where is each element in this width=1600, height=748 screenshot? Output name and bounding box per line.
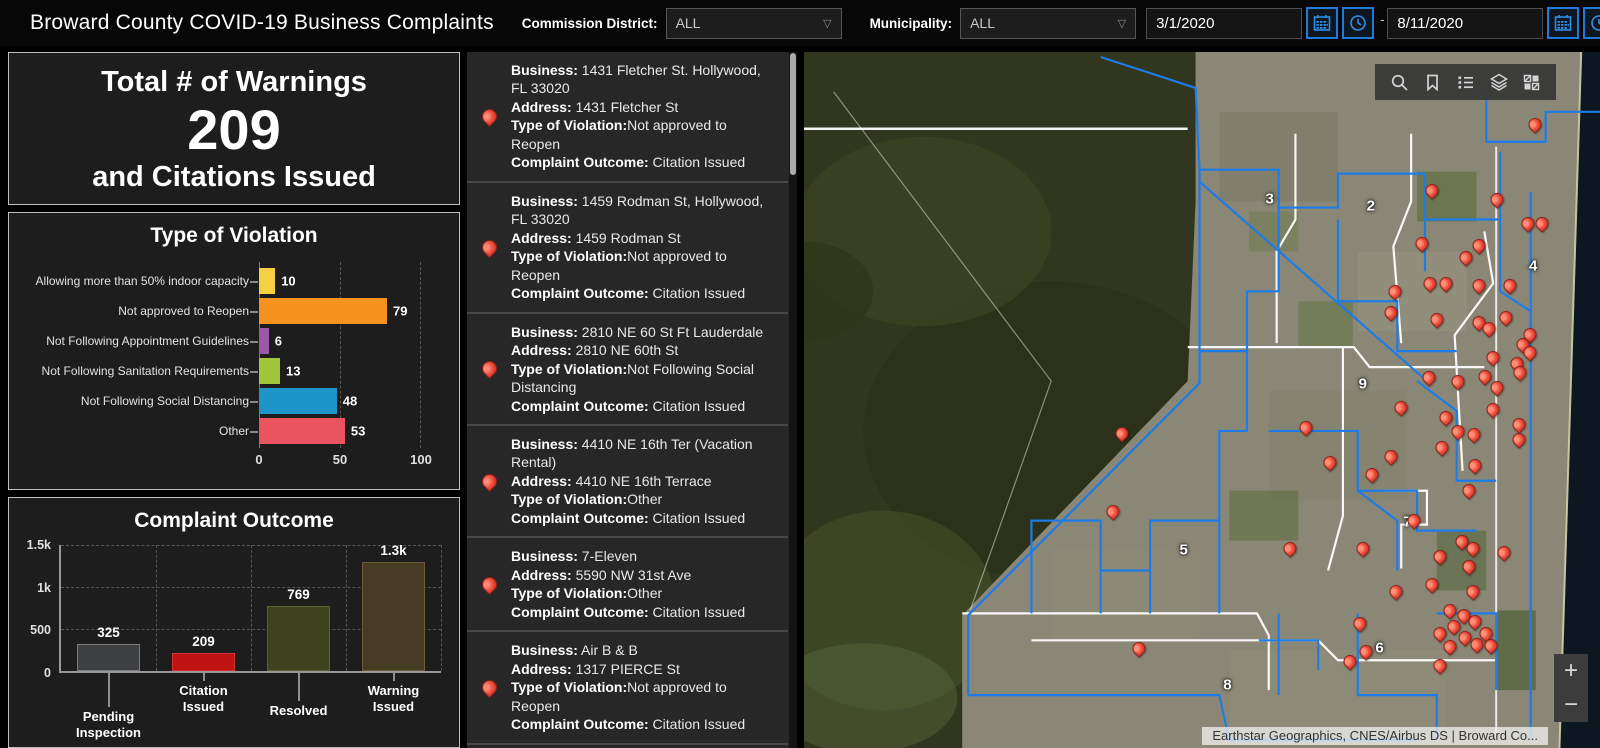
complaint-details: Business: 1431 Fletcher St. Hollywood, F… (511, 61, 767, 172)
violation-chart-title: Type of Violation (9, 224, 459, 248)
outcome-category-label: CitationIssued (156, 683, 251, 716)
violation-bar[interactable] (259, 268, 275, 294)
map-zoom-controls: + − (1554, 654, 1588, 722)
outcome-chart-panel: Complaint Outcome 1.5k1k5000 3252097691.… (8, 497, 460, 748)
list-scrollbar[interactable] (789, 52, 797, 748)
complaint-list-item[interactable]: Business: 4410 NE 16th Ter (Vacation Ren… (467, 424, 788, 536)
map-toolbar (1375, 64, 1556, 100)
field-label: Address: (511, 567, 572, 583)
violation-bar-row: Not Following Sanitation Requirements13 (19, 356, 445, 386)
chevron-down-icon: ▽ (1118, 17, 1126, 30)
pin-column (467, 361, 511, 376)
outcome-bar[interactable] (362, 562, 425, 671)
complaint-map-pin[interactable] (1448, 422, 1466, 440)
outcome-y-tick: 1k (37, 581, 51, 595)
outcome-tick-line (108, 673, 110, 707)
complaint-map-pin[interactable] (1440, 601, 1458, 619)
field-label: Business: (511, 324, 578, 340)
outcome-bar-cell: 1.3k (346, 545, 441, 671)
violation-category-label: Not Following Sanitation Requirements (19, 364, 259, 378)
outcome-bar-cell: 209 (156, 545, 251, 671)
app-title: Broward County COVID-19 Business Complai… (30, 11, 494, 35)
date-range-separator: - (1380, 12, 1384, 27)
map-attribution: Earthstar Geographics, CNES/Airbus DS | … (1202, 727, 1548, 745)
outcome-category: WarningIssued (346, 673, 441, 742)
header-bar: Broward County COVID-19 Business Complai… (0, 0, 1600, 46)
municipality-select[interactable]: ALL ▽ (960, 8, 1136, 39)
complaint-map-pin[interactable] (1488, 190, 1506, 208)
field-label: Type of Violation: (511, 361, 627, 377)
clock-icon (1590, 14, 1600, 32)
complaint-map-pin[interactable] (1297, 418, 1315, 436)
complaint-map-pin[interactable] (1381, 447, 1399, 465)
complaint-map-pin[interactable] (1460, 558, 1478, 576)
complaint-map-pin[interactable] (1465, 425, 1483, 443)
outcome-y-axis: 1.5k1k5000 (21, 545, 59, 673)
kpi-value: 209 (9, 99, 459, 161)
outcome-y-tick: 1.5k (27, 538, 51, 552)
outcome-x-axis: PendingInspectionCitationIssuedResolvedW… (61, 673, 441, 742)
field-label: Address: (511, 473, 572, 489)
complaint-map-pin[interactable] (1501, 276, 1519, 294)
outcome-bars: 3252097691.3k (61, 545, 441, 671)
basemap-icon[interactable] (1515, 69, 1548, 95)
violation-bar-value: 79 (393, 304, 407, 319)
complaint-map-pin[interactable] (1533, 214, 1551, 232)
complaint-details: Business: 7-ElevenAddress: 5590 NW 31st … (511, 547, 767, 621)
complaint-map-pin[interactable] (1526, 115, 1544, 133)
complaint-details: Business: Air B & BAddress: 1317 PIERCE … (511, 641, 767, 733)
violation-bar-value: 13 (286, 364, 300, 379)
complaint-map-pin[interactable] (1386, 283, 1404, 301)
outcome-tick-line (393, 673, 395, 681)
complaint-map-pin[interactable] (1431, 656, 1449, 674)
complaint-map-pin[interactable] (1510, 430, 1528, 448)
complaint-map-pin[interactable] (1280, 540, 1298, 558)
violation-category-label: Other (19, 424, 259, 438)
violation-bar-value: 53 (351, 424, 365, 439)
complaint-map-pin[interactable] (1437, 274, 1455, 292)
complaint-map-pin[interactable] (1130, 640, 1148, 658)
field-label: Complaint Outcome: (511, 398, 649, 414)
violation-chart: Allowing more than 50% indoor capacity10… (19, 266, 445, 472)
violation-bar[interactable] (259, 388, 337, 414)
zoom-out-button[interactable]: − (1554, 688, 1588, 722)
municipality-value: ALL (970, 15, 995, 31)
commission-district-label: Commission District: (522, 16, 658, 31)
outcome-chart: 1.5k1k5000 3252097691.3k (21, 545, 441, 673)
field-label: Address: (511, 230, 572, 246)
violation-bar-area: 13 (259, 358, 421, 384)
complaint-list-item[interactable]: Business: 7-ElevenAddress: 5590 NW 31st … (467, 536, 788, 630)
start-date-calendar-button[interactable] (1306, 7, 1338, 39)
complaint-map-pin[interactable] (1440, 638, 1458, 656)
kpi-subtitle: and Citations Issued (9, 161, 459, 194)
outcome-y-tick: 0 (44, 666, 51, 680)
complaint-map-pin[interactable] (1459, 482, 1477, 500)
violation-x-axis: 050100 (259, 452, 421, 472)
calendar-icon (1313, 14, 1331, 32)
violation-bar-value: 10 (281, 274, 295, 289)
complaint-map-pin[interactable] (1382, 303, 1400, 321)
complaint-map-pin[interactable] (1405, 512, 1423, 530)
complaint-map-pin[interactable] (1510, 415, 1528, 433)
end-date-calendar-button[interactable] (1547, 7, 1579, 39)
violation-bar-row: Not approved to Reopen79 (19, 296, 445, 326)
outcome-category-label: PendingInspection (61, 709, 156, 742)
dashboard-body: Total # of Warnings 209 and Citations Is… (0, 46, 1600, 748)
complaint-map-pin[interactable] (1436, 408, 1454, 426)
violation-category-label: Not approved to Reopen (19, 304, 259, 318)
bookmark-icon[interactable] (1416, 69, 1449, 95)
violation-x-tick: 100 (410, 452, 432, 467)
red-pin-icon (478, 677, 499, 698)
complaint-details: Business: 1459 Rodman St, Hollywood, FL … (511, 192, 767, 303)
violation-category-label: Not Following Social Distancing (19, 394, 259, 408)
field-label: Address: (511, 661, 572, 677)
municipality-label: Municipality: (870, 16, 953, 31)
list-scrollbar-thumb[interactable] (790, 53, 796, 175)
field-label: Address: (511, 342, 572, 358)
outcome-tick-line (298, 673, 300, 701)
outcome-bar-value: 769 (287, 587, 310, 602)
violation-bar-area: 6 (259, 328, 421, 354)
complaint-map-pin[interactable] (1321, 453, 1339, 471)
complaint-map-pin[interactable] (1483, 348, 1501, 366)
outcome-category-label: WarningIssued (346, 683, 441, 716)
complaint-map-pin[interactable] (1484, 400, 1502, 418)
complaint-list-item[interactable]: Business: 1431 Fletcher St. Hollywood, F… (467, 52, 788, 181)
pin-column (467, 474, 511, 489)
outcome-bar-cell: 769 (251, 545, 346, 671)
complaint-map-pin[interactable] (1428, 310, 1446, 328)
violation-bar-value: 6 (275, 334, 282, 349)
red-pin-icon (478, 237, 499, 258)
complaint-details: Business: 4410 NE 16th Ter (Vacation Ren… (511, 435, 767, 527)
violation-bar-area: 79 (259, 298, 421, 324)
complaint-map-pin[interactable] (1470, 276, 1488, 294)
legend-icon[interactable] (1449, 69, 1482, 95)
outcome-plot-area: 3252097691.3k (59, 545, 441, 673)
layers-icon[interactable] (1482, 69, 1515, 95)
field-label: Business: (511, 436, 578, 452)
outcome-bar-value: 1.3k (380, 543, 406, 558)
violation-bar-value: 48 (343, 394, 357, 409)
complaint-map-pin[interactable] (1350, 615, 1368, 633)
field-label: Type of Violation: (511, 248, 627, 264)
complaint-map-pin[interactable] (1470, 236, 1488, 254)
complaint-map-pin[interactable] (1431, 547, 1449, 565)
pin-column (467, 109, 511, 124)
outcome-bar-cell: 325 (61, 545, 156, 671)
field-label: Business: (511, 62, 578, 78)
violation-bar-area: 48 (259, 388, 421, 414)
complaint-map-pin[interactable] (1423, 182, 1441, 200)
complaint-map-pin[interactable] (1412, 235, 1430, 253)
outcome-y-tick: 500 (30, 623, 51, 637)
search-icon[interactable] (1383, 69, 1416, 95)
complaint-map-pin[interactable] (1423, 575, 1441, 593)
complaint-map-pin[interactable] (1387, 583, 1405, 601)
complaint-map-pin[interactable] (1495, 544, 1513, 562)
complaint-map-pin[interactable] (1420, 274, 1438, 292)
violation-bar[interactable] (259, 358, 280, 384)
violation-bar[interactable] (259, 418, 345, 444)
violation-bar-row: Not Following Social Distancing48 (19, 386, 445, 416)
complaint-map-pin[interactable] (1363, 465, 1381, 483)
violation-bar-row: Not Following Appointment Guidelines6 (19, 326, 445, 356)
red-pin-icon (478, 358, 499, 379)
outcome-category-label: Resolved (251, 703, 346, 719)
outcome-chart-title: Complaint Outcome (9, 509, 459, 533)
complaint-map-pin[interactable] (1463, 583, 1481, 601)
violation-category-label: Allowing more than 50% indoor capacity (19, 274, 259, 288)
kpi-title: Total # of Warnings (9, 66, 459, 99)
field-label: Business: (511, 548, 578, 564)
clock-icon (1349, 14, 1367, 32)
complaint-map-pin[interactable] (1497, 308, 1515, 326)
red-pin-icon (478, 574, 499, 595)
violation-category-label: Not Following Appointment Guidelines (19, 334, 259, 348)
field-label: Type of Violation: (511, 117, 627, 133)
complaint-map-pin[interactable] (1354, 540, 1372, 558)
outcome-bar[interactable] (77, 644, 140, 671)
complaints-list: Business: 1431 Fletcher St. Hollywood, F… (467, 52, 797, 748)
complaints-list-items: Business: 1431 Fletcher St. Hollywood, F… (467, 52, 788, 748)
outcome-bar[interactable] (267, 606, 330, 671)
calendar-icon (1554, 14, 1572, 32)
outcome-gridline (441, 545, 442, 671)
outcome-bar-value: 209 (192, 634, 215, 649)
complaint-map-pin[interactable] (1104, 502, 1122, 520)
outcome-tick-line (203, 673, 205, 681)
violation-bar[interactable] (259, 298, 387, 324)
complaint-map-pin[interactable] (1341, 652, 1359, 670)
violation-chart-panel: Type of Violation Allowing more than 50%… (8, 212, 460, 490)
field-label: Complaint Outcome: (511, 285, 649, 301)
complaint-map-pin[interactable] (1518, 214, 1536, 232)
field-label: Business: (511, 193, 578, 209)
field-label: Complaint Outcome: (511, 154, 649, 170)
complaint-map-pin[interactable] (1433, 438, 1451, 456)
field-label: Complaint Outcome: (511, 604, 649, 620)
commission-district-value: ALL (676, 15, 701, 31)
violation-bar-row: Other53 (19, 416, 445, 446)
field-label: Type of Violation: (511, 491, 627, 507)
complaint-map-pin[interactable] (1357, 643, 1375, 661)
red-pin-icon (478, 106, 499, 127)
violation-bar-row: Allowing more than 50% indoor capacity10 (19, 266, 445, 296)
zoom-in-button[interactable]: + (1554, 654, 1588, 688)
field-label: Type of Violation: (511, 585, 627, 601)
complaint-list-item[interactable]: Business: 1459 Rodman St, Hollywood, FL … (467, 181, 788, 312)
chevron-down-icon: ▽ (823, 17, 831, 30)
complaint-map-pin[interactable] (1457, 248, 1475, 266)
pin-column (467, 240, 511, 255)
field-label: Business: (511, 642, 578, 658)
complaint-map-pin[interactable] (1466, 456, 1484, 474)
outcome-category: Resolved (251, 673, 346, 742)
violation-bar-area: 10 (259, 268, 421, 294)
map-panel[interactable]: 32497568 (804, 52, 1600, 748)
field-label: Complaint Outcome: (511, 716, 649, 732)
complaint-list-item[interactable]: Business: 2810 NE 60 St Ft LauderdaleAdd… (467, 312, 788, 424)
field-label: Type of Violation: (511, 679, 627, 695)
complaint-map-pin[interactable] (1392, 398, 1410, 416)
start-time-clock-button[interactable] (1342, 7, 1374, 39)
outcome-bar-value: 325 (97, 625, 120, 640)
complaint-details: Business: 2810 NE 60 St Ft LauderdaleAdd… (511, 323, 767, 415)
red-pin-icon (478, 471, 499, 492)
complaint-list-item[interactable]: Business: Air B & BAddress: 1317 PIERCE … (467, 630, 788, 742)
commission-district-select[interactable]: ALL ▽ (666, 8, 842, 39)
violation-chart-rows: Allowing more than 50% indoor capacity10… (19, 266, 445, 446)
outcome-category: PendingInspection (61, 673, 156, 742)
complaint-map-pin[interactable] (1420, 368, 1438, 386)
warnings-kpi-panel: Total # of Warnings 209 and Citations Is… (8, 52, 460, 205)
left-column: Total # of Warnings 209 and Citations Is… (8, 52, 460, 748)
violation-x-tick: 0 (255, 452, 262, 467)
violation-x-tick: 50 (333, 452, 347, 467)
end-time-clock-button[interactable] (1583, 7, 1600, 39)
field-label: Complaint Outcome: (511, 510, 649, 526)
violation-bar[interactable] (259, 328, 269, 354)
end-date-input[interactable]: 8/11/2020 (1387, 8, 1543, 39)
pin-column (467, 577, 511, 592)
complaint-map-pin[interactable] (1448, 372, 1466, 390)
pin-column (467, 680, 511, 695)
violation-bar-area: 53 (259, 418, 421, 444)
outcome-bar[interactable] (172, 653, 235, 671)
complaint-list-item[interactable]: Business: Air B & BAddress: 800 HOLLYWOO… (467, 743, 788, 748)
complaint-pins-layer (804, 52, 1600, 748)
start-date-input[interactable]: 3/1/2020 (1146, 8, 1302, 39)
complaint-map-pin[interactable] (1112, 424, 1130, 442)
complaint-map-pin[interactable] (1487, 378, 1505, 396)
outcome-category: CitationIssued (156, 673, 251, 742)
field-label: Address: (511, 99, 572, 115)
